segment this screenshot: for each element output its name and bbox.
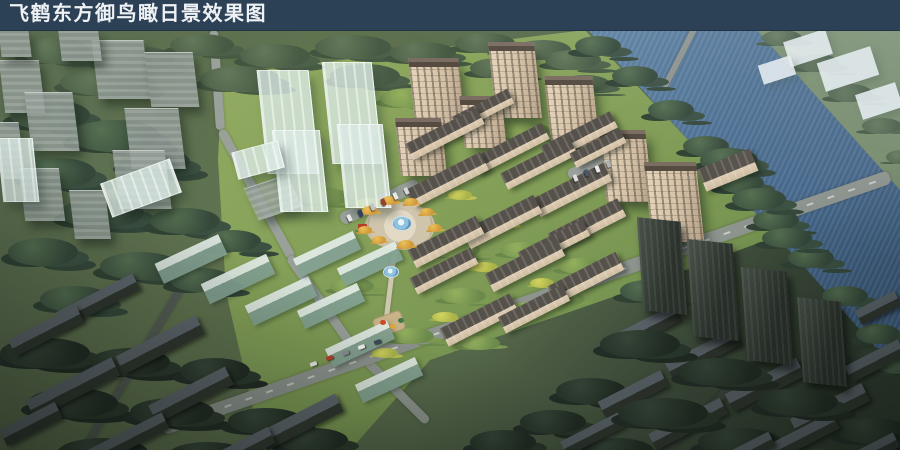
context-massing-block [58, 30, 102, 61]
tree-cluster [612, 66, 658, 86]
playground-equipment [390, 324, 396, 329]
tree-cluster [240, 44, 310, 68]
tree-cluster [758, 388, 838, 416]
ghost-tower [0, 138, 39, 202]
tree-cluster [372, 348, 398, 358]
playground-equipment [398, 318, 404, 323]
tree-cluster [150, 208, 220, 234]
screenshot: 飞鹤东方御鸟瞰日景效果图 [0, 0, 900, 450]
title-bar: 飞鹤东方御鸟瞰日景效果图 [0, 0, 900, 31]
tree-cluster [315, 35, 391, 59]
ghost-tower [272, 130, 329, 212]
tree-cluster [862, 118, 900, 134]
tree-cluster [372, 236, 386, 244]
playground-equipment [380, 320, 386, 325]
tree-cluster [618, 398, 708, 428]
context-tower [637, 217, 687, 315]
tree-cluster [420, 208, 434, 216]
tree-cluster [358, 226, 372, 234]
tree-cluster [470, 430, 536, 450]
context-tower [797, 297, 847, 387]
tree-cluster [8, 238, 78, 266]
context-massing-block [145, 52, 200, 107]
tree-cluster [678, 358, 762, 386]
context-massing-block [0, 30, 32, 57]
aerial-rendering [0, 30, 900, 450]
tree-cluster [520, 410, 586, 434]
tree-cluster [404, 198, 418, 206]
fountain [383, 266, 399, 278]
tree-cluster [648, 100, 694, 120]
tree-cluster [788, 248, 834, 268]
tree-cluster [440, 288, 486, 304]
tree-cluster [460, 336, 500, 350]
tree-cluster [732, 188, 786, 210]
tree-cluster [575, 36, 621, 56]
tree-cluster [753, 210, 799, 230]
context-tower [741, 267, 793, 365]
image-title: 飞鹤东方御鸟瞰日景效果图 [0, 0, 900, 29]
context-tower [687, 239, 740, 341]
ghost-tower [337, 124, 392, 208]
tree-cluster [448, 190, 472, 200]
tree-cluster [398, 240, 414, 249]
fountain [392, 216, 412, 231]
tree-cluster [428, 224, 442, 232]
tree-cluster [762, 228, 812, 248]
tree-cluster [600, 330, 680, 358]
